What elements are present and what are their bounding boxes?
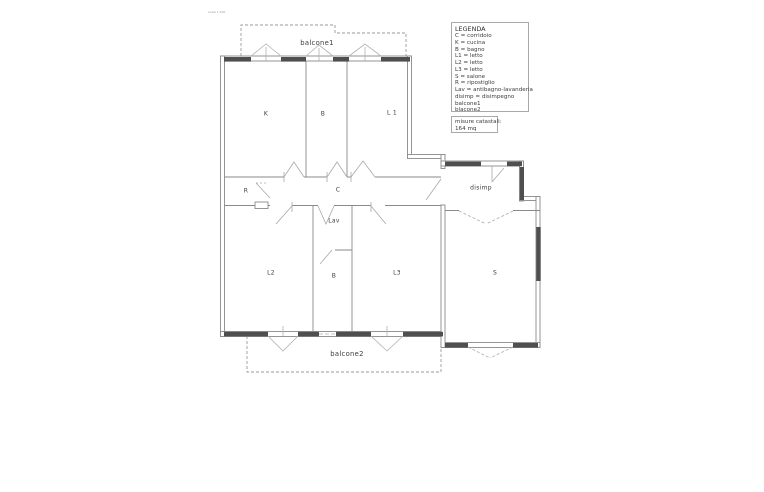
legend-line: S = salone: [455, 74, 525, 81]
room-label-l3: L3: [393, 270, 401, 277]
room-label-r: R: [244, 188, 248, 195]
legend-line: disimp = disimpegno: [455, 94, 525, 101]
floorplan-page: scala 1:100: [0, 0, 764, 492]
pillar: [255, 202, 268, 209]
legend-box: LEGENDA C = corridoio K = cucina B = bag…: [451, 22, 529, 112]
room-label-k: K: [264, 111, 268, 118]
legend-line: Lav = antibagno-lavanderia: [455, 87, 525, 94]
room-label-b-bottom: B: [332, 273, 336, 280]
legend-line: L2 = letto: [455, 60, 525, 67]
floor-plan-drawing: [0, 0, 764, 492]
room-label-c: C: [336, 187, 341, 194]
legend-line: balcone1: [455, 101, 525, 108]
cadastral-measure-box: misure catastali: 164 mq: [451, 116, 498, 133]
door-swings: [256, 161, 504, 264]
room-label-disimp: disimp: [470, 185, 492, 192]
legend-line: R = ripostiglio: [455, 80, 525, 87]
measure-value: 164 mq: [455, 126, 494, 133]
room-label-l2: L2: [267, 270, 275, 277]
room-label-b-top: B: [321, 111, 325, 118]
legend-line: L1 = letto: [455, 53, 525, 60]
room-label-l1: L 1: [387, 110, 397, 117]
balcone1-label: balcone1: [300, 39, 333, 47]
legend-line: K = cucina: [455, 40, 525, 47]
salone-dashed-doors: [459, 211, 513, 358]
balcony-door-swings: [251, 44, 403, 351]
legend-line: C = corridoio: [455, 33, 525, 40]
legend-line: blacone2: [455, 107, 525, 114]
legend-title: LEGENDA: [455, 25, 525, 33]
balcone2-label: balcone2: [330, 350, 363, 358]
room-label-lav: Lav: [328, 218, 339, 225]
measure-caption: misure catastali:: [455, 119, 494, 126]
legend-line: B = bagno: [455, 47, 525, 54]
legend-line: L3 = letto: [455, 67, 525, 74]
room-label-s: S: [493, 270, 497, 277]
